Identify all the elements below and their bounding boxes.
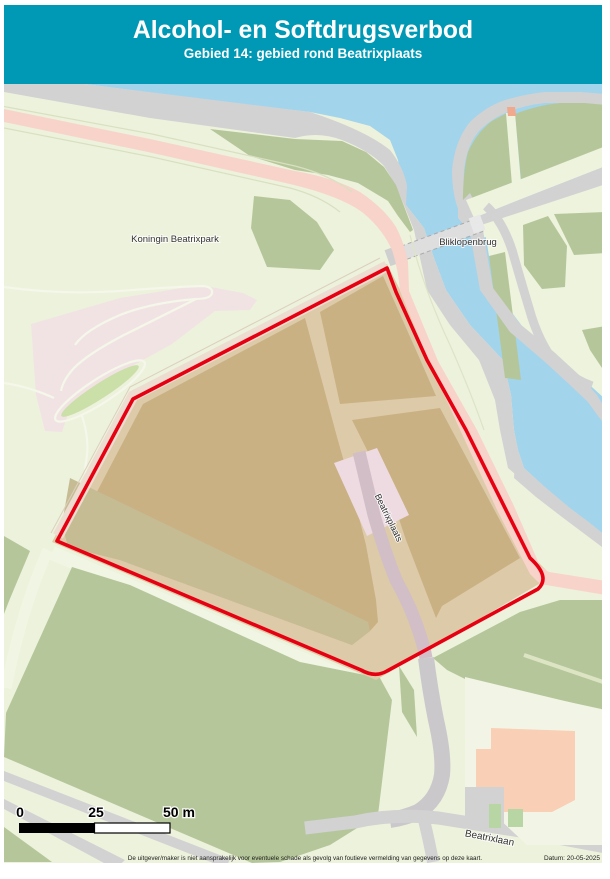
svg-text:Datum: 20-05-2025: Datum: 20-05-2025 [544, 855, 600, 862]
svg-text:Bliklopenbrug: Bliklopenbrug [439, 237, 497, 248]
svg-text:50 m: 50 m [163, 804, 195, 820]
svg-text:0: 0 [16, 804, 24, 820]
svg-text:Koningin Beatrixpark: Koningin Beatrixpark [131, 234, 219, 245]
svg-text:De uitgever/maker is niet aans: De uitgever/maker is niet aansprakelijk … [128, 855, 482, 862]
svg-text:25: 25 [88, 804, 104, 820]
